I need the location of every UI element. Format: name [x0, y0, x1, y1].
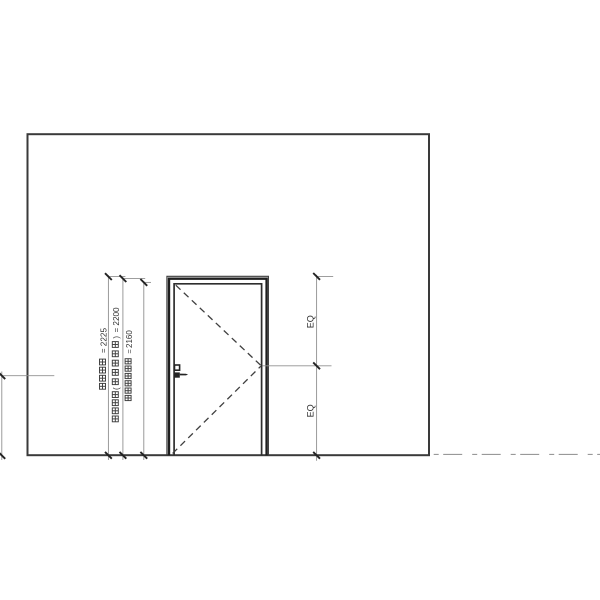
svg-text:(: (: [112, 387, 121, 390]
svg-text:=: =: [112, 327, 121, 332]
svg-text:): ): [112, 336, 121, 339]
svg-text:EQ: EQ: [305, 315, 315, 328]
svg-text:=: =: [125, 349, 134, 354]
svg-text:EQ: EQ: [305, 404, 315, 417]
svg-text:2200: 2200: [112, 307, 121, 326]
svg-text:=: =: [99, 348, 108, 353]
svg-text:2160: 2160: [125, 330, 134, 348]
svg-text:2225: 2225: [99, 328, 108, 347]
